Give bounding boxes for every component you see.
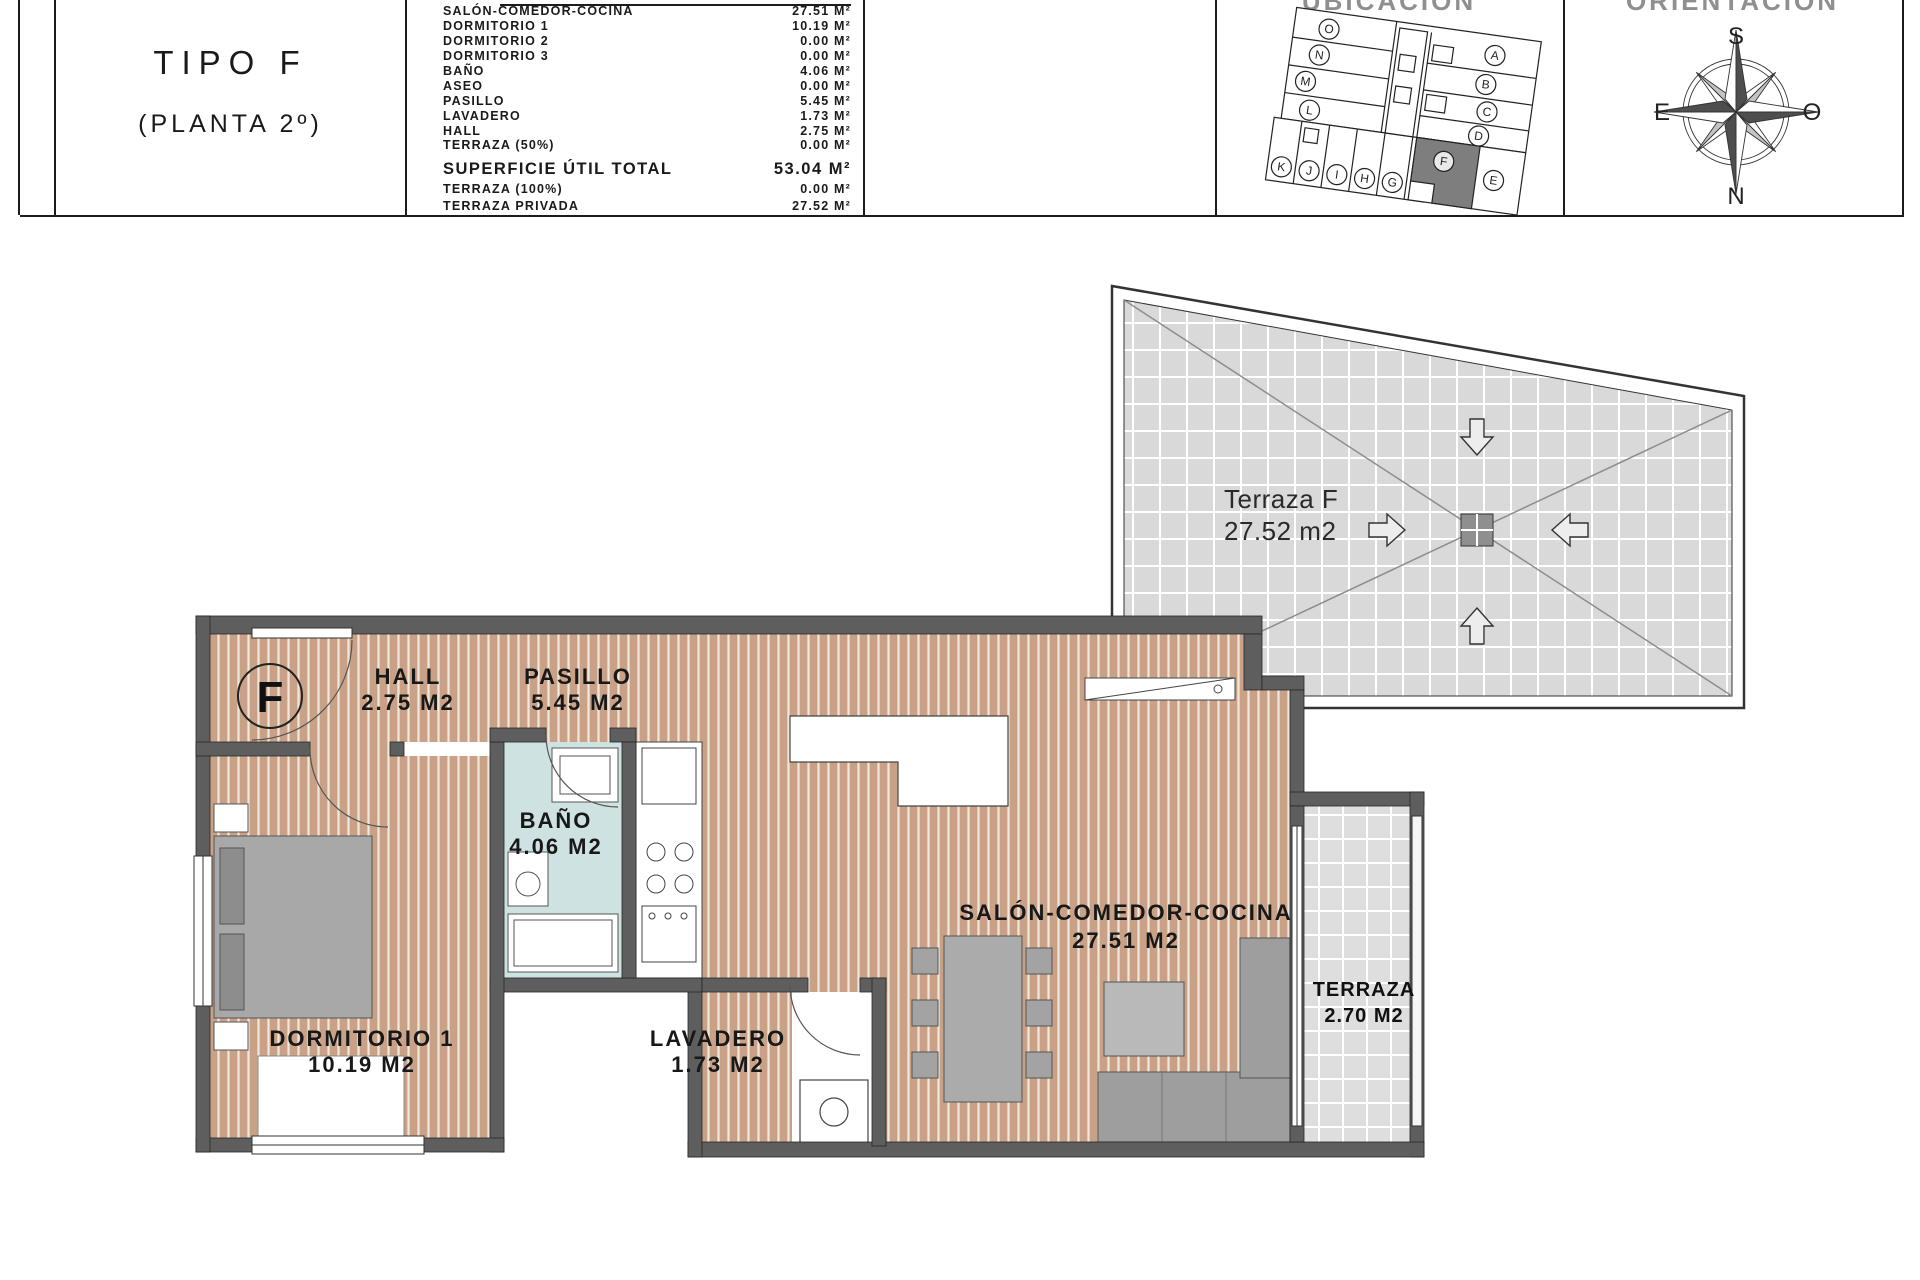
room-label-terraza: TERRAZA xyxy=(1313,979,1416,1001)
compass-west-label: O xyxy=(1803,99,1822,126)
room-label-dormitorio: DORMITORIO 1 xyxy=(270,1026,455,1051)
site-location-diagram: O N M L A B C D K J I H G F E xyxy=(1265,6,1541,215)
floor-plan: F HALL 2.75 M2 PASILLO 5.45 M2 BAÑO 4.06… xyxy=(194,616,1424,1157)
drawing-canvas: O N M L A B C D K J I H G F E xyxy=(0,0,1920,1280)
compass-south-label: S xyxy=(1728,23,1744,50)
terrace-plan-area: 27.52 m2 xyxy=(1224,516,1336,546)
site-unit-letter: M xyxy=(1300,74,1312,89)
terrace-plan-name: Terraza F xyxy=(1224,484,1338,514)
compass-east-label: E xyxy=(1654,99,1670,126)
room-area-terraza: 2.70 M2 xyxy=(1324,1005,1403,1027)
plan-sheet: TIPO F (PLANTA 2º) SALÓN-COMEDOR-COCINA2… xyxy=(0,0,1920,1280)
site-unit-letter: G xyxy=(1387,175,1398,190)
room-area-hall: 2.75 M2 xyxy=(361,690,455,715)
kitchen-counter xyxy=(636,742,702,978)
nightstand xyxy=(214,1022,248,1050)
nightstand xyxy=(214,804,248,832)
compass-rose-icon: S N E O xyxy=(1654,23,1821,210)
bed xyxy=(214,836,372,1018)
unit-letter: F xyxy=(257,673,284,722)
compass-north-label: N xyxy=(1727,183,1744,210)
room-label-hall: HALL xyxy=(375,664,442,689)
room-label-lavadero: LAVADERO xyxy=(650,1026,786,1051)
tv-console xyxy=(1085,678,1235,700)
dining-set xyxy=(912,936,1052,1102)
room-label-pasillo: PASILLO xyxy=(524,664,632,689)
coffee-table xyxy=(1104,982,1184,1056)
site-unit-letter: O xyxy=(1323,22,1334,37)
room-label-bano: BAÑO xyxy=(520,808,593,833)
room-label-salon: SALÓN-COMEDOR-COCINA xyxy=(959,900,1292,925)
room-area-salon: 27.51 M2 xyxy=(1072,928,1180,953)
small-terrace-floor xyxy=(1304,806,1410,1142)
room-area-lavadero: 1.73 M2 xyxy=(671,1052,765,1077)
room-area-dormitorio: 10.19 M2 xyxy=(308,1052,416,1077)
room-area-bano: 4.06 M2 xyxy=(509,834,603,859)
room-area-pasillo: 5.45 M2 xyxy=(531,690,625,715)
washer xyxy=(800,1080,868,1144)
